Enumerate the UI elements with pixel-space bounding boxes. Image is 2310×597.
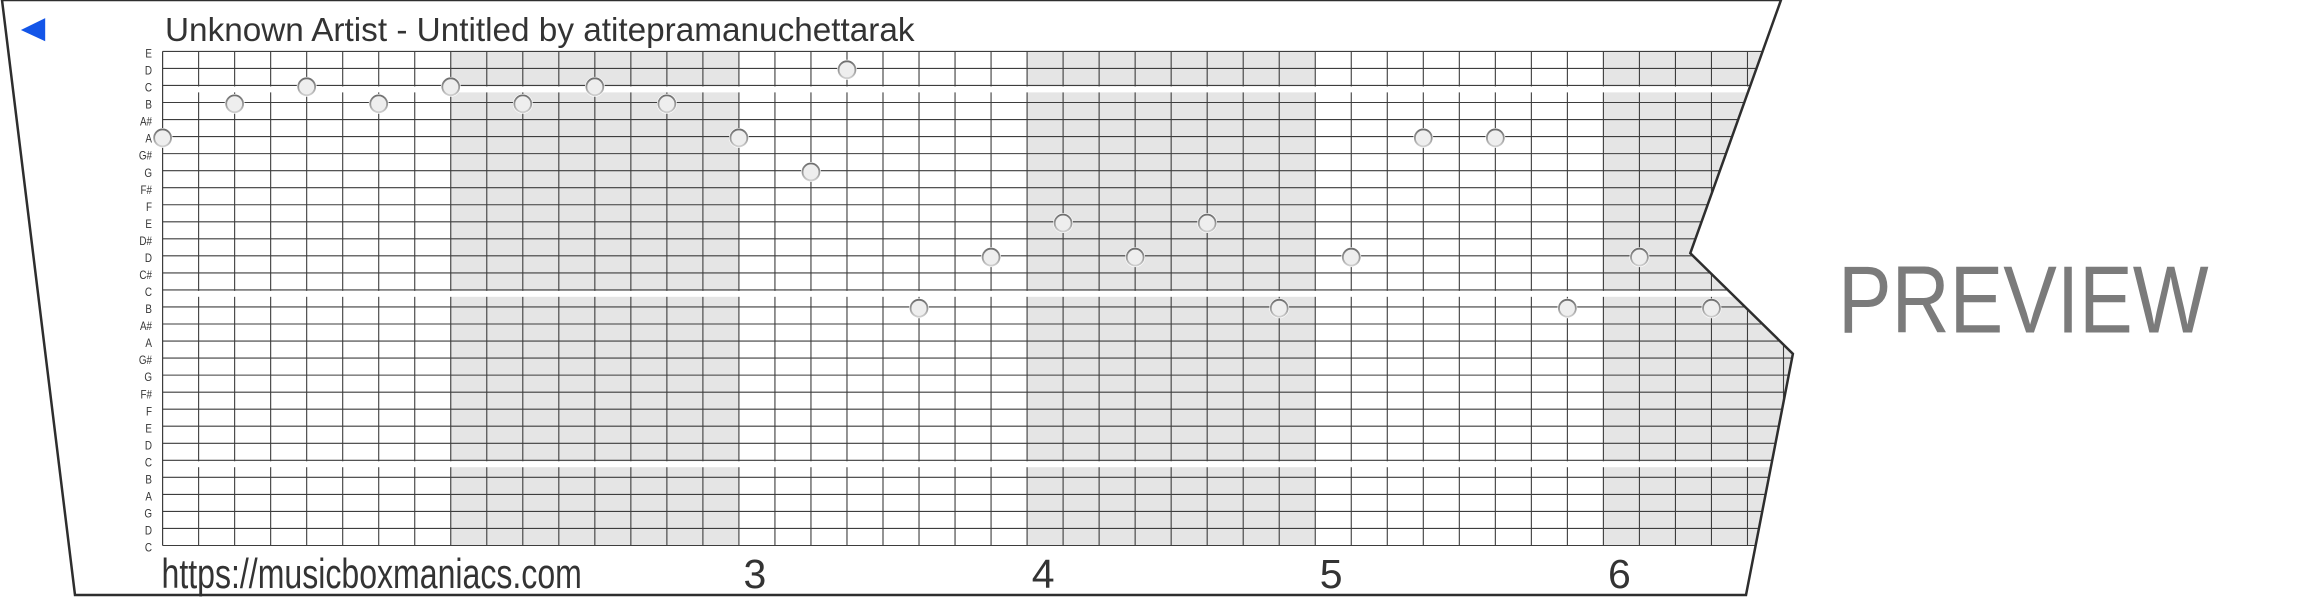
svg-text:B: B [145, 303, 152, 316]
svg-text:https://musicboxmaniacs.com: https://musicboxmaniacs.com [162, 550, 582, 597]
svg-text:B: B [145, 99, 152, 112]
svg-text:F#: F# [141, 184, 153, 197]
svg-text:F: F [146, 406, 152, 419]
svg-text:C#: C# [139, 269, 152, 282]
svg-text:D: D [145, 525, 152, 538]
svg-text:E: E [145, 423, 152, 436]
svg-text:D: D [145, 440, 152, 453]
svg-text:G: G [144, 508, 152, 521]
svg-text:G#: G# [139, 355, 152, 368]
svg-text:E: E [145, 48, 152, 61]
svg-text:G#: G# [139, 150, 152, 163]
svg-text:6: 6 [1608, 551, 1631, 597]
svg-text:G: G [144, 167, 152, 180]
svg-text:E: E [145, 218, 152, 231]
svg-text:A: A [145, 337, 152, 350]
svg-text:C: C [145, 82, 152, 95]
svg-text:G: G [144, 372, 152, 385]
svg-text:A#: A# [140, 320, 152, 333]
svg-text:4: 4 [1032, 551, 1055, 597]
svg-text:B: B [145, 474, 152, 487]
svg-text:A: A [145, 133, 152, 146]
svg-text:C: C [145, 457, 152, 470]
svg-text:D: D [145, 252, 152, 265]
svg-text:5: 5 [1320, 551, 1343, 597]
svg-text:A: A [145, 491, 152, 504]
svg-text:C: C [145, 286, 152, 299]
svg-text:A#: A# [140, 116, 152, 129]
svg-text:Unknown Artist - Untitled by a: Unknown Artist - Untitled by atitepraman… [165, 12, 915, 49]
svg-text:C: C [145, 542, 152, 555]
svg-text:F#: F# [141, 389, 153, 402]
svg-text:D#: D# [139, 235, 152, 248]
svg-text:D: D [145, 65, 152, 78]
svg-text:3: 3 [743, 551, 766, 597]
svg-text:F: F [146, 201, 152, 214]
svg-text:PREVIEW: PREVIEW [1838, 246, 2209, 353]
